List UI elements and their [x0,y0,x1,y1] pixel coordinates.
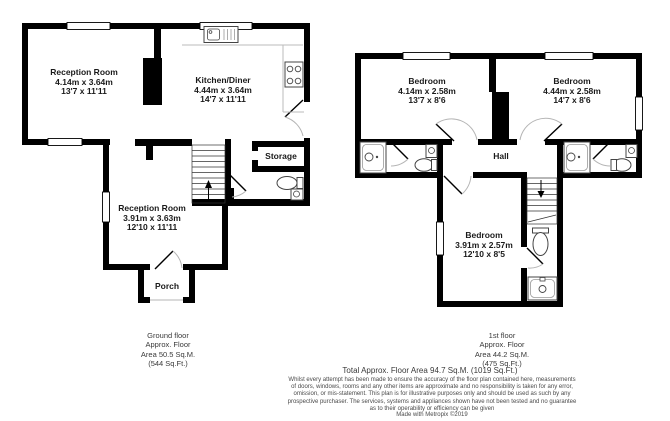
caption-line: Ground floor [141,331,195,340]
ground-reception2-label: Reception Room 3.91m x 3.63m 12'10 x 11'… [118,204,186,233]
room-imperial: 14'7 x 8'6 [543,96,601,106]
caption-line: Area 44.2 Sq.M. [475,350,529,359]
metropix-credit: Made with Metropix ©2019 [396,412,467,418]
kitchen-sink-icon [204,27,238,43]
room-name: Storage [265,152,297,162]
caption-line: 1st floor [475,331,529,340]
right-bath-toilet-icon [611,159,631,172]
caption-line: (544 Sq.Ft.) [141,359,195,368]
stairs-down-icon [527,178,557,224]
total-floor-area: Total Approx. Floor Area 94.7 Sq.M. (101… [342,366,517,375]
left-bath-toilet-icon [415,159,437,172]
first-wc-toilet-icon [533,228,549,256]
room-imperial: 13'7 x 11'11 [50,87,118,97]
ground-kitchen-label: Kitchen/Diner 4.44m x 3.64m 14'7 x 11'11 [194,76,252,105]
ground-storage-label: Storage [265,152,297,162]
first-wc-basin-icon [528,277,557,300]
first-bedroom3-label: Bedroom 3.91m x 2.57m 12'10 x 8'5 [455,231,513,260]
ground-wc-toilet-icon [277,177,303,190]
disclaimer-text: Whilst every attempt has been made to en… [288,377,577,413]
left-bath-basin-icon [426,145,437,158]
right-shower-icon [564,142,590,173]
disclaimer-line: Whilst every attempt has been made to en… [288,377,577,384]
floorplan-page: Reception Room 4.14m x 3.64m 13'7 x 11'1… [0,0,670,421]
first-hall-label: Hall [493,152,509,162]
room-name: Porch [155,282,179,292]
first-bedroom1-label: Bedroom 4.14m x 2.58m 13'7 x 8'6 [398,77,456,106]
left-bath-icon [360,142,386,173]
room-imperial: 14'7 x 11'11 [194,95,252,105]
ground-floor-walls [22,23,310,303]
stairs-up-icon [192,145,225,203]
ground-floor-caption: Ground floor Approx. Floor Area 50.5 Sq.… [141,331,195,368]
caption-line: Approx. Floor [475,340,529,349]
floorplan-drawing [0,0,670,421]
disclaimer-line: omission, or mis-statement. This plan is… [288,391,577,398]
hob-icon [285,62,303,87]
disclaimer-line: prospective purchaser. The services, sys… [288,399,577,406]
first-bedroom2-label: Bedroom 4.44m x 2.58m 14'7 x 8'6 [543,77,601,106]
right-bath-basin-icon [626,145,637,158]
caption-line: Area 50.5 Sq.M. [141,350,195,359]
disclaimer-line: of doors, windows, rooms and any other i… [288,384,577,391]
ground-reception1-label: Reception Room 4.14m x 3.64m 13'7 x 11'1… [50,68,118,97]
room-name: Hall [493,152,509,162]
room-imperial: 12'10 x 11'11 [118,223,186,233]
room-imperial: 12'10 x 8'5 [455,250,513,260]
caption-line: Approx. Floor [141,340,195,349]
room-imperial: 13'7 x 8'6 [398,96,456,106]
ground-porch-label: Porch [155,282,179,292]
ground-wc-basin-icon [291,189,303,200]
first-floor-caption: 1st floor Approx. Floor Area 44.2 Sq.M. … [475,331,529,368]
